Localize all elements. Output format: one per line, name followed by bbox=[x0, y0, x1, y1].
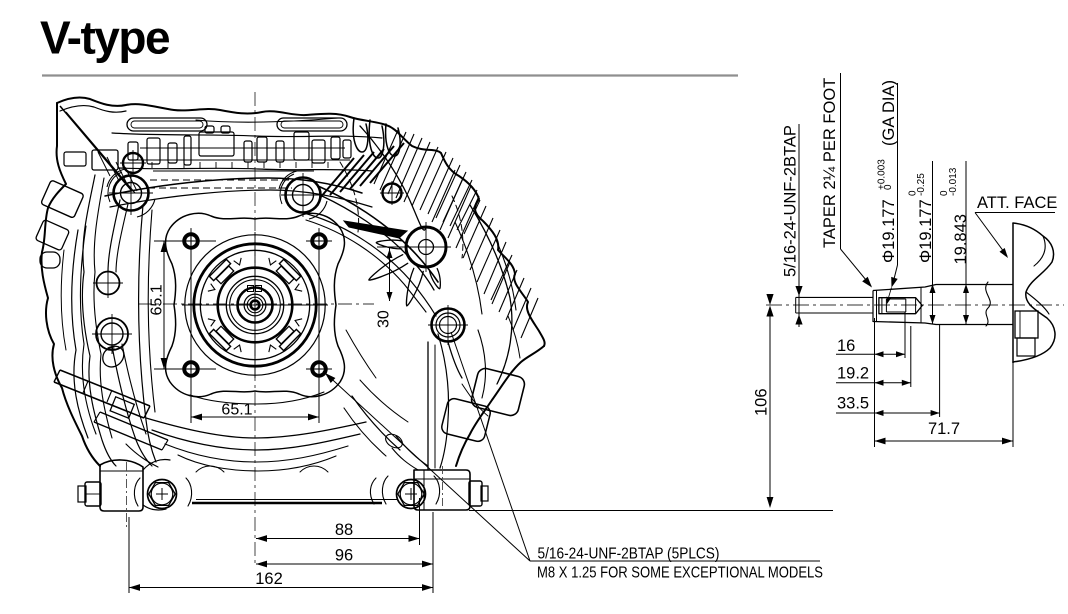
svg-text:19.843: 19.843 bbox=[952, 214, 970, 264]
svg-text:162: 162 bbox=[255, 570, 283, 588]
svg-text:TAPER 2¼ PER FOOT: TAPER 2¼ PER FOOT bbox=[821, 78, 839, 248]
svg-text:33.5: 33.5 bbox=[837, 395, 869, 413]
svg-text:71.7: 71.7 bbox=[928, 420, 960, 438]
svg-text:19.2: 19.2 bbox=[837, 365, 869, 383]
svg-text:ATT. FACE: ATT. FACE bbox=[977, 194, 1057, 212]
svg-text:(GA DIA): (GA DIA) bbox=[880, 80, 898, 146]
svg-text:65.1: 65.1 bbox=[221, 402, 252, 419]
svg-text:16: 16 bbox=[837, 337, 855, 355]
svg-text:96: 96 bbox=[335, 547, 353, 565]
svg-text:5/16-24-UNF-2BTAP: 5/16-24-UNF-2BTAP bbox=[782, 125, 800, 277]
svg-text:106: 106 bbox=[753, 388, 771, 416]
svg-text:V-type: V-type bbox=[40, 12, 170, 64]
svg-text:M8 X 1.25 FOR SOME EXCEPTIONAL: M8 X 1.25 FOR SOME EXCEPTIONAL MODELS bbox=[537, 565, 823, 582]
svg-text:30: 30 bbox=[376, 310, 393, 328]
svg-text:-0.013: -0.013 bbox=[948, 167, 959, 196]
svg-text:65.1: 65.1 bbox=[149, 284, 166, 315]
svg-text:0: 0 bbox=[883, 184, 894, 190]
svg-text:5/16-24-UNF-2BTAP (5PLCS): 5/16-24-UNF-2BTAP (5PLCS) bbox=[538, 546, 720, 563]
svg-text:Φ19.177: Φ19.177 bbox=[880, 199, 898, 263]
svg-text:-0.25: -0.25 bbox=[916, 173, 927, 196]
svg-text:88: 88 bbox=[335, 521, 353, 539]
